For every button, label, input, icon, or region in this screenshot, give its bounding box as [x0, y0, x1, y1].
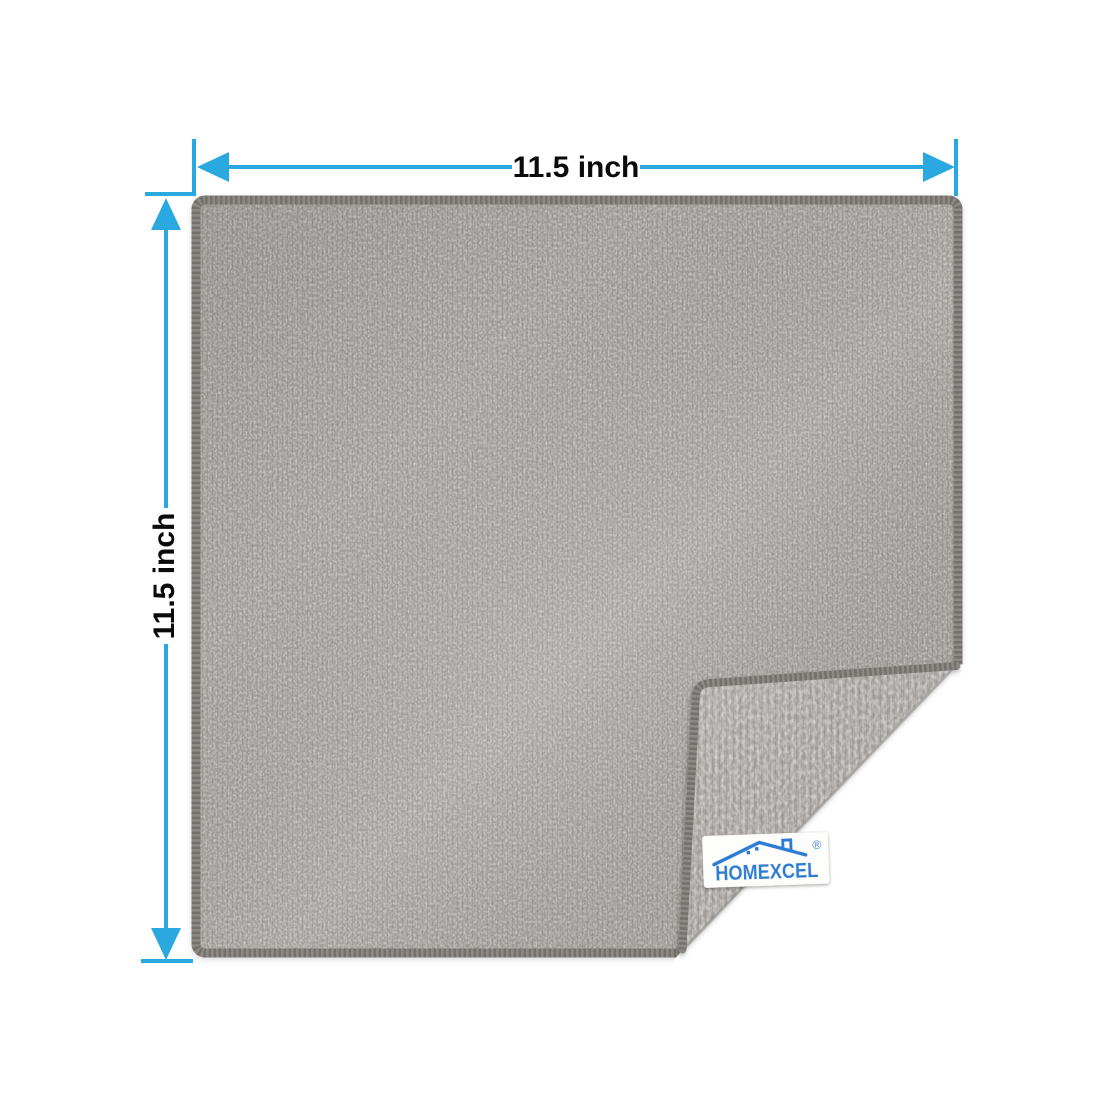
height-dimension-label: 11.5 inch: [148, 513, 181, 640]
registered-mark: ®: [812, 838, 821, 852]
window-dot-icon: [747, 851, 751, 855]
brand-name: HOMEXCEL: [715, 859, 819, 886]
height-arrowhead-bottom-icon: [151, 928, 181, 960]
product-photo: HOMEXCEL ® 11.5 inch 11.5 inch: [0, 0, 1100, 1100]
product-image-canvas: HOMEXCEL ® 11.5 inch 11.5 inch: [0, 0, 1100, 1100]
width-arrowhead-left-icon: [197, 152, 229, 182]
width-arrowhead-right-icon: [923, 152, 955, 182]
width-dimension-label: 11.5 inch: [513, 151, 640, 184]
height-arrowhead-top-icon: [151, 198, 181, 230]
window-dot-icon: [755, 847, 759, 851]
brand-tag: HOMEXCEL ®: [702, 832, 830, 888]
